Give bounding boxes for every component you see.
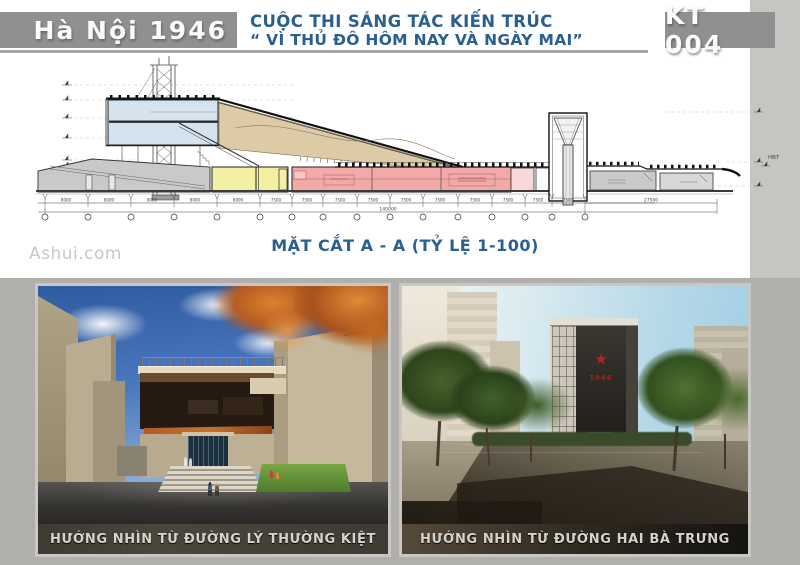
svg-text:8000: 8000 bbox=[104, 198, 115, 203]
svg-text:7500: 7500 bbox=[563, 198, 574, 203]
autumn-foliage bbox=[258, 311, 318, 351]
person bbox=[276, 472, 279, 479]
event-title-banner: Hà Nội 1946 bbox=[0, 12, 237, 48]
caption-hai-ba-trung: HƯỚNG NHÌN TỪ ĐƯỜNG HAI BÀ TRƯNG bbox=[402, 524, 748, 554]
tower-top-beam bbox=[550, 318, 638, 326]
memorial-tower-section bbox=[549, 113, 587, 205]
person bbox=[208, 482, 212, 496]
competition-title: CUỘC THI SÁNG TÁC KIẾN TRÚC “ VÌ THỦ ĐÔ … bbox=[250, 12, 583, 50]
svg-text:7500: 7500 bbox=[470, 198, 481, 203]
hedge-row bbox=[472, 432, 692, 446]
svg-text:7500: 7500 bbox=[368, 198, 379, 203]
tree-trunk bbox=[530, 434, 532, 462]
tree-canopy bbox=[502, 378, 572, 433]
ground-shadow-2 bbox=[402, 501, 542, 524]
museum-interior-glow bbox=[188, 400, 218, 414]
lawn bbox=[256, 464, 351, 492]
level-ref-label: HBT bbox=[768, 155, 780, 161]
competition-title-line2: “ VÌ THỦ ĐÔ HÔM NAY VÀ NGÀY MAI” bbox=[250, 31, 583, 50]
star-icon: ★ bbox=[588, 352, 614, 367]
dimension-chain: 8000 8000 8000 8000 8000 7500 7500 7500 … bbox=[38, 194, 717, 220]
event-title: Hà Nội 1946 bbox=[34, 16, 227, 45]
rendering-ly-thuong-kiet: HƯỚNG NHÌN TỪ ĐƯỜNG LÝ THƯỜNG KIỆT bbox=[35, 283, 391, 557]
svg-text:7500: 7500 bbox=[401, 198, 412, 203]
glazed-upper-block bbox=[106, 97, 222, 147]
tower-year: 1946 bbox=[588, 374, 614, 382]
competition-board: Hà Nội 1946 CUỘC THI SÁNG TÁC KIẾN TRÚC … bbox=[0, 0, 800, 565]
person bbox=[215, 483, 219, 496]
svg-text:7500: 7500 bbox=[271, 198, 282, 203]
section-caption: MẶT CẮT A - A (TỶ LỆ 1-100) bbox=[271, 236, 539, 255]
rendering-ly-thuong-kiet-image bbox=[38, 286, 388, 524]
svg-text:140000: 140000 bbox=[379, 207, 396, 213]
rendering-hai-ba-trung-image: ★ 1946 bbox=[402, 286, 748, 524]
tree-trunk bbox=[724, 434, 726, 469]
svg-text:7500: 7500 bbox=[302, 198, 313, 203]
svg-text:8000: 8000 bbox=[61, 198, 72, 203]
museum-interior-glow bbox=[223, 397, 263, 415]
header-rule bbox=[0, 50, 648, 53]
sloped-auditorium bbox=[218, 99, 463, 172]
column-grid-bubbles bbox=[42, 214, 588, 220]
annex-wall bbox=[117, 446, 147, 476]
entry-glass bbox=[188, 436, 228, 466]
caption-ly-thuong-kiet: HƯỚNG NHÌN TỪ ĐƯỜNG LÝ THƯỜNG KIỆT bbox=[38, 524, 388, 554]
svg-text:8000: 8000 bbox=[233, 198, 244, 203]
svg-text:7500: 7500 bbox=[533, 198, 544, 203]
museum-box-wing bbox=[250, 378, 286, 394]
svg-text:7500: 7500 bbox=[435, 198, 446, 203]
svg-text:8000: 8000 bbox=[190, 198, 201, 203]
person bbox=[184, 457, 187, 466]
watermark: Ashui.com bbox=[29, 244, 122, 264]
plaza-line bbox=[442, 452, 702, 453]
svg-text:27500: 27500 bbox=[644, 198, 658, 204]
svg-text:7500: 7500 bbox=[503, 198, 514, 203]
person bbox=[189, 458, 192, 466]
rendering-hai-ba-trung: ★ 1946 HƯỚNG NHÌN TỪ ĐƯỜNG HAI BÀ TRƯNG bbox=[399, 283, 751, 557]
entry-code-banner: KT 004 bbox=[665, 12, 775, 48]
svg-text:7500: 7500 bbox=[335, 198, 346, 203]
entry-code: KT 004 bbox=[665, 1, 767, 59]
competition-title-line1: CUỘC THI SÁNG TÁC KIẾN TRÚC bbox=[250, 12, 583, 31]
svg-text:8000: 8000 bbox=[147, 198, 158, 203]
person bbox=[270, 470, 273, 478]
